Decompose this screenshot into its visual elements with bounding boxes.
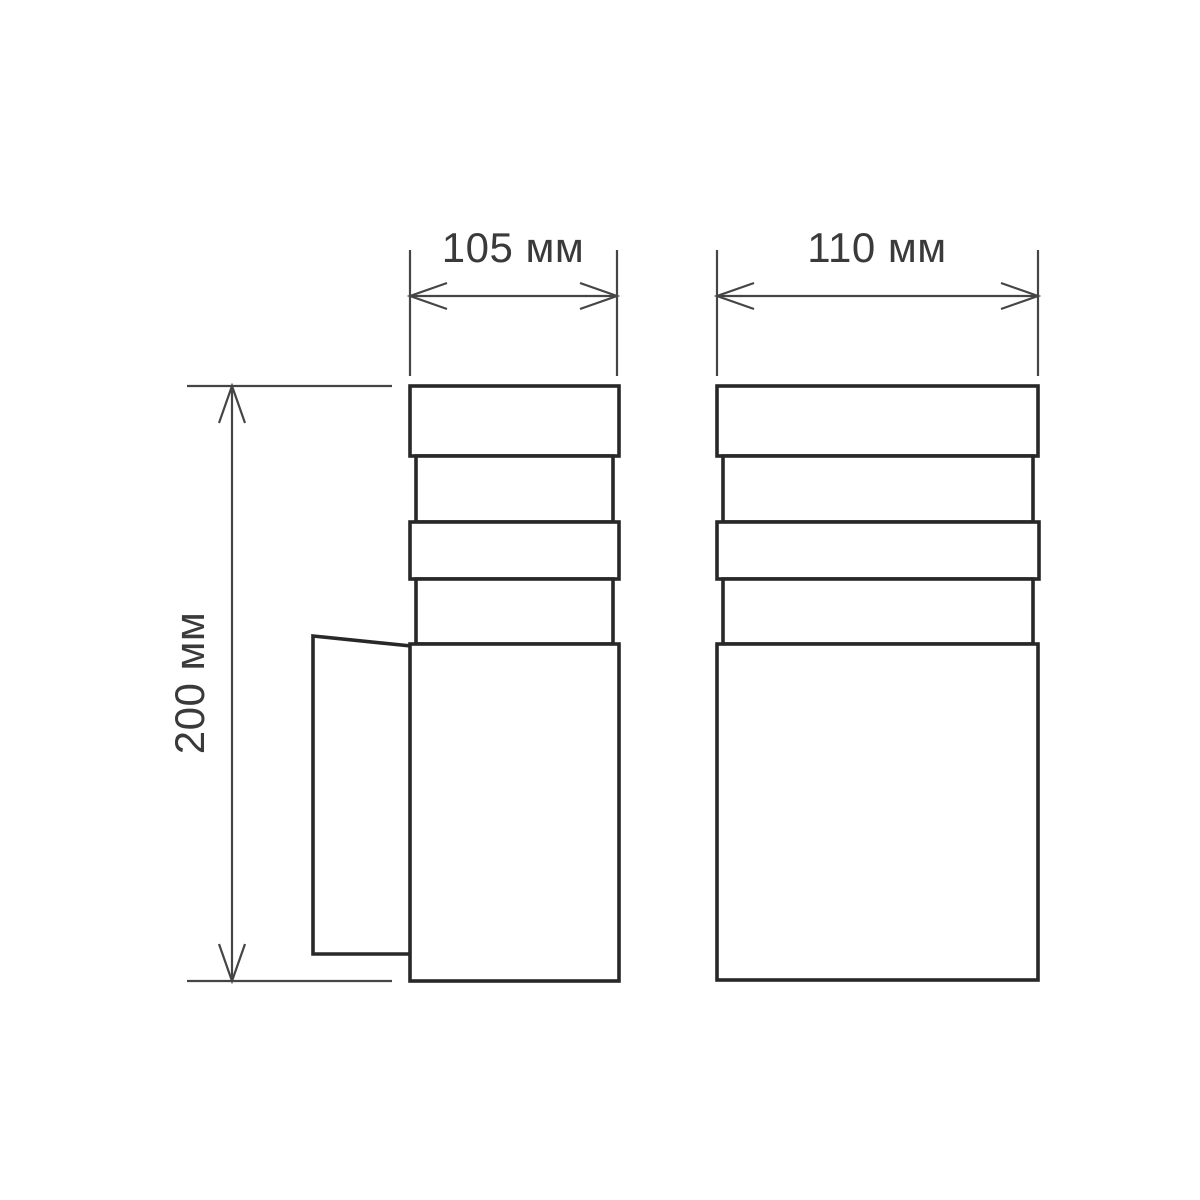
dimension-label-side-width: 105 мм	[442, 224, 585, 271]
technical-drawing: 105 мм 110 мм 200 мм	[0, 0, 1200, 1200]
side-view-recessed-band-lower	[416, 579, 613, 644]
front-view	[717, 386, 1039, 980]
drawing-canvas: 105 мм 110 мм 200 мм	[0, 0, 1200, 1200]
front-view-top-cap	[717, 386, 1038, 456]
dimension-label-front-width: 110 мм	[807, 224, 946, 271]
side-view-ring-band	[410, 522, 619, 579]
front-view-body	[717, 644, 1038, 980]
dimension-side-width: 105 мм	[410, 224, 617, 376]
front-view-ring-band	[717, 522, 1039, 579]
wall-mount-plate	[313, 636, 411, 954]
dimension-label-height: 200 мм	[166, 612, 213, 755]
dimension-front-width: 110 мм	[717, 224, 1038, 376]
side-view-top-cap	[410, 386, 619, 456]
side-view-body	[410, 644, 619, 981]
side-view	[313, 386, 619, 981]
front-view-recessed-band-lower	[723, 579, 1033, 644]
front-view-recessed-band-upper	[723, 456, 1033, 522]
side-view-recessed-band-upper	[416, 456, 613, 522]
